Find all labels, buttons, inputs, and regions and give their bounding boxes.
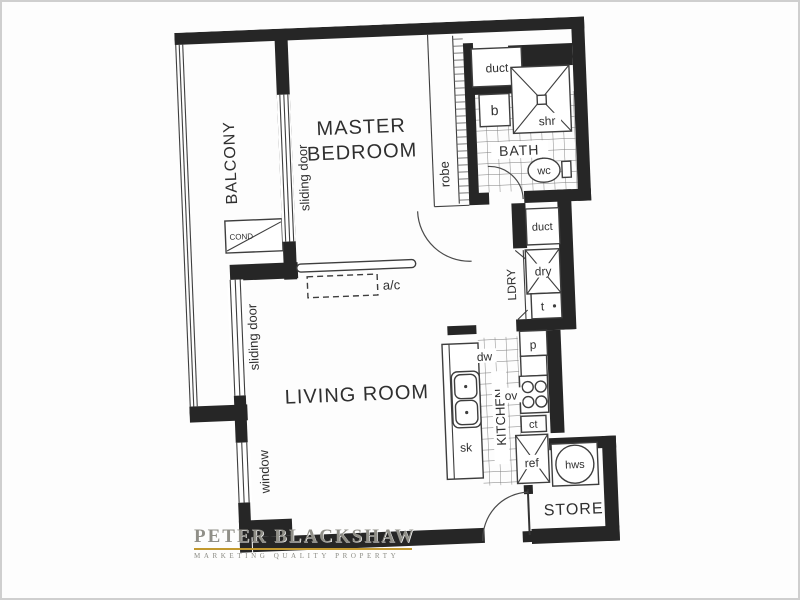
dryer-icon: dry: [525, 249, 561, 294]
aircon-icon: a/c: [307, 273, 401, 298]
counter-label: ct: [529, 419, 538, 431]
sink-label: sk: [460, 440, 474, 455]
aircon-label: a/c: [383, 277, 401, 293]
floor-plan-canvas: BALCONY COND sliding door sliding door: [174, 15, 631, 577]
dryer-label: dry: [534, 264, 551, 279]
agency-logo: PETER BLACKSHAW MARKETING QUALITY PROPER…: [194, 526, 424, 560]
tub-icon: t: [531, 293, 562, 319]
living-room-label: LIVING ROOM: [284, 381, 429, 409]
basin-label: b: [490, 102, 499, 118]
duct-mid-label: duct: [532, 221, 553, 234]
bedroom-door-arc-icon: [418, 209, 472, 263]
floor-plan: BALCONY COND sliding door sliding door: [174, 15, 631, 577]
scanned-floor-plan-page: BALCONY COND sliding door sliding door: [0, 0, 800, 600]
agency-tagline: MARKETING QUALITY PROPERTY: [194, 552, 424, 560]
robe-label: robe: [437, 161, 453, 188]
window-opening: [234, 442, 252, 503]
sliding-door-living-label: sliding door: [244, 303, 262, 371]
agency-name: PETER BLACKSHAW: [194, 526, 424, 548]
condenser-label: COND: [229, 232, 253, 242]
bath-label: BATH: [499, 141, 540, 159]
fridge-label: ref: [525, 456, 540, 471]
window-label: window: [256, 449, 273, 495]
kitchen-cabinet-cell: [520, 355, 547, 376]
pantry-label: p: [529, 338, 537, 352]
duct-top-label: duct: [485, 61, 509, 76]
shower-icon: shr: [511, 65, 572, 133]
shower-label: shr: [538, 114, 555, 129]
laundry-label: LDRY: [504, 268, 519, 300]
master-bedroom-label-line2: BEDROOM: [307, 139, 418, 165]
oven-label: ov: [504, 388, 517, 402]
fridge-icon: ref: [516, 434, 550, 483]
gold-rule: [194, 548, 412, 550]
hot-water-icon: hws: [551, 442, 599, 486]
pantry-icon: p: [519, 330, 547, 356]
balcony-label: BALCONY: [221, 121, 241, 205]
balcony-railing: [176, 45, 198, 407]
basin-icon: b: [479, 94, 510, 127]
toilet-label: wc: [536, 165, 551, 178]
hot-water-label: hws: [565, 459, 586, 472]
dishwasher-label: dw: [477, 349, 493, 364]
duct-mid-icon: duct: [526, 208, 560, 245]
cooktop-icon: [519, 375, 548, 413]
master-bedroom-label-line1: MASTER: [316, 115, 406, 141]
store-label: STORE: [543, 500, 603, 519]
bedroom-living-divider-wall: [297, 259, 416, 272]
entry-door-icon: [481, 489, 530, 541]
counter-icon: ct: [521, 415, 547, 432]
condenser-unit-icon: COND: [225, 219, 283, 253]
